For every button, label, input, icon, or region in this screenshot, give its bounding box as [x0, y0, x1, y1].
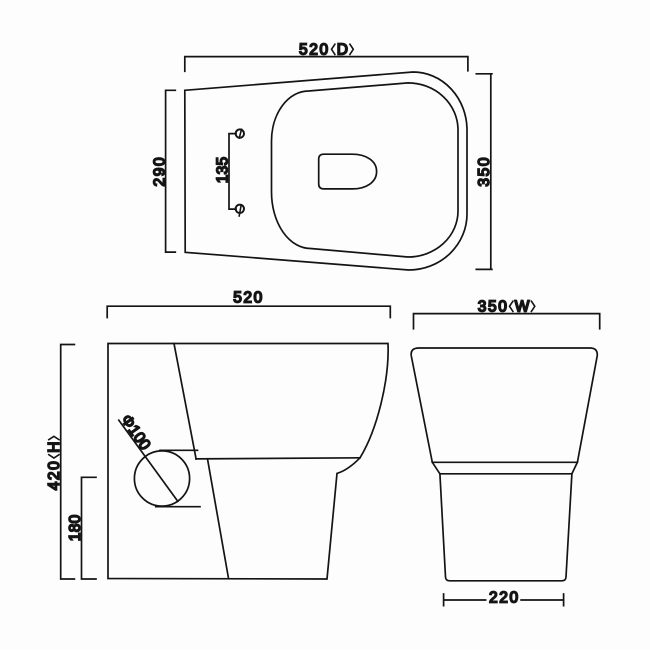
svg-text:W: W — [515, 298, 531, 315]
svg-text:Φ100: Φ100 — [117, 412, 153, 454]
svg-text:520: 520 — [299, 41, 330, 58]
svg-text:135: 135 — [215, 157, 232, 184]
svg-text:290: 290 — [152, 156, 169, 187]
svg-text:180: 180 — [67, 514, 84, 541]
svg-text:350: 350 — [478, 298, 509, 315]
svg-text:H: H — [46, 440, 63, 453]
svg-text:520: 520 — [233, 289, 264, 306]
svg-text:D: D — [337, 41, 350, 58]
svg-text:350: 350 — [476, 156, 493, 187]
svg-text:220: 220 — [489, 589, 520, 606]
svg-text:420: 420 — [46, 460, 63, 491]
